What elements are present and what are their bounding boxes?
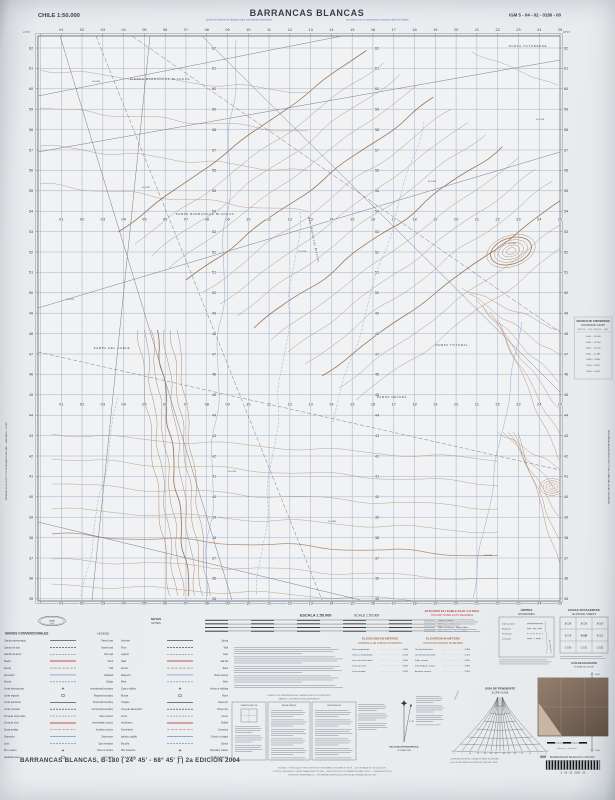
micro-text-line — [416, 712, 433, 713]
grid-row-label: 55 — [375, 188, 379, 193]
micro-text-line — [424, 629, 476, 630]
grid-row-label: 42 — [375, 453, 379, 458]
credit-line-1: EDITADO Y PUBLICADO POR EL INSTITUTO GEO… — [278, 767, 386, 770]
grid-row-label: 48 — [375, 331, 379, 336]
elevation-row-en: 4.365 — [465, 649, 471, 651]
micro-text-line — [560, 656, 602, 657]
spot-elevation-dot — [484, 555, 485, 556]
notes-title-es: NOTAS — [151, 617, 161, 621]
micro-text-line — [271, 739, 303, 740]
micro-text-line — [315, 720, 350, 721]
legend-item-es: Cementerio — [121, 729, 134, 732]
grid-row-label: 60 — [564, 86, 569, 91]
legend-item-en: Railroad — [104, 674, 113, 677]
grid-column-label: 01 — [59, 402, 63, 407]
grid-row-label: 59 — [212, 107, 216, 112]
grid-column-label: 08 — [205, 27, 209, 32]
grid-column-label: 09 — [225, 601, 229, 606]
grid-row-label: 39 — [29, 515, 33, 520]
box3-title: DATUM WGS-84 — [327, 704, 341, 707]
elevation-row-en: Intermediate contour — [415, 665, 435, 668]
micro-text-line — [315, 716, 339, 717]
micro-text-line — [315, 743, 349, 744]
legend-item-en: Trail — [109, 667, 114, 670]
conversion-row: 4.000 — 13.123 — [586, 348, 602, 350]
grid-row-label: 50 — [29, 290, 34, 295]
legend-item-es: Arenal — [121, 667, 128, 670]
grid-row-label: 43 — [564, 433, 568, 438]
micro-text-line — [424, 622, 478, 623]
legend-item-es: Línea de alta tensión — [121, 708, 143, 711]
micro-text-line — [235, 726, 260, 727]
legend-item-es: Hito fronterizo — [121, 749, 136, 752]
scale-bar-segment — [228, 627, 251, 628]
micro-text-line — [416, 721, 433, 722]
grid-column-label: 23 — [516, 601, 520, 606]
micro-text-line — [315, 750, 353, 751]
micro-text-line — [271, 720, 304, 721]
legend-item-en: Provincial boundary — [93, 701, 114, 704]
scale-bar-segment — [320, 627, 343, 628]
grid-column-label: 17 — [392, 601, 396, 606]
grid-column-label: 17 — [392, 27, 396, 32]
grid-column-label: 21 — [475, 601, 479, 606]
grid-row-label: 53 — [212, 229, 216, 234]
spot-elevation-value: 4.033 — [487, 555, 493, 557]
spot-elevation-value: 4.150 — [231, 471, 237, 473]
legend-item-es: Curva auxiliar — [4, 729, 18, 732]
micro-text-line — [416, 696, 441, 697]
micro-text-line — [358, 720, 377, 721]
grid-row-label: 35 — [29, 596, 33, 601]
legend-item-en: Well — [224, 647, 229, 649]
corner-coordinate-nw: 24°45' — [23, 30, 31, 34]
grid-row-label: 51 — [29, 270, 33, 275]
spot-elevation-value: 4.074 — [69, 299, 75, 301]
fan-tick: 7 — [462, 753, 463, 755]
elev-guide-title-es: GUÍA DE ELEVACIÓN — [571, 662, 597, 665]
grid-row-label: 51 — [375, 270, 379, 275]
slope-footnote-a: a) PENDIENTE ENTRE CURVAS DE NIVEL SUCES… — [450, 758, 499, 761]
grid-row-label: 53 — [29, 229, 33, 234]
micro-text-line — [234, 678, 339, 679]
legend-item-es: Iglesia o capilla — [121, 736, 137, 738]
grid-row-label: 62 — [564, 45, 568, 50]
grid-column-label: 15 — [350, 402, 354, 407]
slope-left-axis: TANGENTE — [453, 690, 460, 701]
legend-item-en: Communal boundary — [92, 708, 114, 711]
grid-row-label: 43 — [212, 433, 216, 438]
legend-item-en: Spot elevation — [98, 742, 113, 745]
micro-text-line — [358, 708, 385, 709]
grid-row-label: 42 — [29, 453, 33, 458]
micro-text-line — [271, 743, 303, 744]
limits-title-en: BOUNDARIES — [518, 613, 535, 616]
legend-item-en: Auxiliary contour — [96, 729, 113, 732]
grid-column-label: 21 — [475, 402, 479, 407]
legend-title-es: SIGNOS CONVENCIONALES — [5, 632, 48, 636]
micro-text-line — [416, 715, 443, 716]
fan-rung — [452, 751, 549, 752]
grid-column-label: 02 — [80, 217, 84, 222]
legend-item-en: Mine — [223, 682, 229, 684]
spot-elevation-value: 4.705 — [511, 243, 517, 245]
elevation-row-es: 3.925 — [403, 671, 409, 673]
micro-text-line — [416, 725, 441, 726]
header-note-right: este documento no compromete la posición… — [346, 19, 409, 22]
legend-item-es: Camino de tierra — [4, 653, 22, 656]
grid-column-label: 05 — [142, 27, 146, 32]
grid-row-label: 53 — [564, 229, 568, 234]
grid-column-label: 18 — [412, 402, 416, 407]
grid-column-label: 11 — [267, 601, 271, 606]
micro-text-line — [560, 658, 606, 659]
legend-item-en: Lake — [223, 654, 229, 656]
grid-column-label: 12 — [288, 402, 292, 407]
grid-row-label: 39 — [375, 515, 379, 520]
scale-bar-segment — [366, 620, 389, 621]
grid-column-label: 17 — [392, 402, 396, 407]
grid-column-label: 03 — [101, 27, 105, 32]
micro-text-line — [234, 685, 335, 686]
fan-curve — [502, 697, 515, 751]
micro-text-line — [416, 717, 441, 718]
grid-column-label: 23 — [516, 27, 520, 32]
legend-item-es: Cota — [4, 742, 10, 745]
grid-row-label: 35 — [212, 596, 216, 601]
micro-text-line — [271, 735, 293, 736]
grid-row-label: 46 — [212, 372, 216, 377]
legend-item-en: Boundary marker — [210, 749, 228, 752]
grid-column-label: 18 — [412, 217, 416, 222]
spot-elevation-value: 4.365 — [95, 81, 101, 83]
edition-line: BARRANCAS BLANCAS, B-180 ( 24° 45' - 68°… — [20, 756, 240, 764]
grid-row-label: 42 — [564, 453, 568, 458]
grid-row-label: 62 — [29, 45, 33, 50]
micro-text-line — [416, 710, 442, 711]
grid-row-label: 47 — [375, 351, 379, 356]
micro-text-line — [315, 741, 351, 742]
spot-elevation-value: 4.462 — [431, 181, 437, 183]
grid-row-label: 56 — [564, 168, 568, 173]
grid-column-label: 25 — [558, 402, 562, 407]
grid-column-label: 16 — [371, 402, 375, 407]
spot-elevation-dot — [428, 181, 429, 182]
elevation-row-en: 3.925 — [465, 671, 471, 673]
spot-elevation-dot — [328, 521, 329, 522]
grid-column-label: 15 — [350, 601, 354, 606]
grid-row-label: 51 — [212, 270, 216, 275]
legend-item-es: Laguna — [121, 654, 129, 656]
product-brand: IGM — [540, 755, 546, 759]
legend-item-en: Depression — [101, 735, 113, 738]
scale-bar-segment — [228, 631, 251, 632]
micro-text-line — [358, 716, 388, 717]
grid-column-label: 03 — [101, 402, 105, 407]
grid-row-label: 38 — [212, 535, 216, 540]
barcode — [546, 761, 600, 770]
red-notice-es: ESTE MAPA ES LEGIBLE BAJO LUZ ROJA — [425, 609, 480, 613]
elevation-row-en: 3.950 — [465, 666, 471, 668]
grid-column-label: 24 — [537, 27, 542, 32]
micro-text-line — [315, 754, 339, 755]
barcode-digits: 5 04 02 0180 00 — [561, 771, 586, 775]
declination-date: OCTUBRE 2003 — [397, 750, 411, 752]
legend-items: Camino pavimentadoPaved roadCamino de ri… — [4, 640, 229, 759]
grid-column-label: 22 — [495, 27, 499, 32]
micro-text-line — [271, 714, 303, 715]
grid-row-label: 42 — [212, 453, 216, 458]
legend-item-es: Camino de ripio — [4, 646, 21, 649]
grid-row-label: 57 — [375, 147, 379, 152]
grid-row-label: 39 — [212, 515, 216, 520]
legend-item-en: Sand — [223, 668, 229, 670]
grid-column-label: 20 — [454, 27, 459, 32]
grid-column-label: 21 — [475, 27, 479, 32]
grid-row-label: 37 — [212, 555, 216, 560]
grid-column-label: 08 — [205, 601, 209, 606]
elev-guide-title-en: ELEVATION GUIDE — [574, 666, 594, 669]
elevation-row-es: Curva de nivel índice — [352, 659, 373, 662]
fan-tick: 20 — [484, 753, 486, 755]
grid-row-label: 43 — [375, 433, 379, 438]
grid-column-label: 06 — [163, 217, 167, 222]
micro-text-line — [234, 663, 302, 664]
elev-guide-tick-label: 2.000 — [595, 750, 600, 752]
grid-column-label: 08 — [205, 217, 209, 222]
grid-row-label: 55 — [564, 188, 568, 193]
grid-column-label: 19 — [433, 217, 437, 222]
elevation-row-en: Unchecked elevation — [415, 654, 436, 657]
sheet-title: BARRANCAS BLANCAS — [250, 8, 365, 18]
grid-column-label: 07 — [184, 217, 188, 222]
limits-title-es: LÍMITES — [521, 607, 533, 612]
elevation-row-es: Cota no comprobada — [352, 654, 373, 657]
legend-item-en: Cemetery — [218, 729, 229, 732]
grid-row-label: 36 — [564, 576, 568, 581]
micro-text-line — [271, 760, 304, 761]
elevation-row-en: Index contour — [415, 659, 429, 662]
grid-row-label: 58 — [564, 127, 568, 132]
grid-row-label: 40 — [564, 494, 569, 499]
fan-tick: 45 — [495, 753, 497, 755]
micro-text-line — [315, 722, 353, 723]
grid-column-label: 23 — [516, 402, 520, 407]
spot-elevation-dot — [66, 299, 67, 300]
grid-row-label: 62 — [212, 45, 216, 50]
micro-text-line — [315, 726, 339, 727]
micro-text-line — [235, 751, 252, 752]
legend-item-es: Puente — [4, 681, 12, 684]
legend-item-en: Salt flat — [220, 660, 228, 663]
micro-text-line — [358, 718, 386, 719]
fan-tick: 30 — [490, 753, 492, 755]
grid-row-label: 45 — [564, 392, 568, 397]
grid-column-label: 09 — [225, 27, 229, 32]
micro-text-line — [235, 747, 260, 748]
fan-tick: 7 — [538, 753, 539, 755]
grid-column-label: 15 — [350, 217, 354, 222]
logo-abbr: I.G.M. — [49, 621, 55, 623]
micro-text-line — [315, 735, 339, 736]
elevation-rows: Cota comprobada4.365Cota no comprobada4.… — [352, 648, 471, 673]
micro-text-line — [416, 702, 433, 703]
grid-column-label: 12 — [288, 27, 292, 32]
grid-row-label: 36 — [375, 576, 379, 581]
grid-column-label: 13 — [308, 27, 312, 32]
inset-caption: Kilómetros — Kilometers — [557, 747, 577, 750]
grid-row-label: 48 — [564, 331, 568, 336]
grid-column-label: 02 — [80, 402, 84, 407]
grid-column-label: 18 — [412, 601, 416, 606]
grid-row-label: 52 — [212, 249, 216, 254]
micro-text-line — [315, 724, 351, 725]
conversion-row: 5.000 — 16.404 — [586, 336, 602, 338]
elevation-row-en: Auxiliary contour — [415, 670, 431, 673]
fan-tick: 10 — [529, 753, 531, 755]
elevation-row-es: 4.000 — [403, 660, 409, 662]
micro-text-line — [315, 760, 350, 761]
adjoining-cell: B-158 — [565, 623, 572, 626]
grid-row-label: 59 — [375, 107, 379, 112]
grid-column-label: 16 — [371, 601, 375, 606]
legend-item-es: Quebrada seca — [4, 756, 20, 759]
legend-title-en: LEGEND — [97, 632, 110, 636]
place-label: PAMPA BARRANCAS BLANCAS — [176, 212, 235, 216]
elevation-row-es: 4.120 — [403, 655, 409, 657]
grid-row-label: 50 — [564, 290, 569, 295]
grid-column-label: 19 — [433, 27, 437, 32]
scale-title-es: ESCALA 1:50.000 — [300, 614, 332, 618]
grid-row-label: 48 — [29, 331, 33, 336]
grid-row-label: 55 — [212, 188, 216, 193]
micro-text-line — [235, 732, 252, 733]
legend-item-en: River or stream — [97, 749, 113, 752]
legend-item-en: Bridge — [106, 681, 113, 684]
grid-column-label: 03 — [101, 601, 105, 606]
legend-item-en: Paved road — [101, 640, 113, 643]
micro-text-line — [315, 739, 348, 740]
grid-row-label: 52 — [29, 249, 33, 254]
grid-column-label: 16 — [371, 217, 375, 222]
fan-tick: 15 — [521, 753, 523, 755]
grid-row-label: 49 — [564, 311, 568, 316]
legend-item-es: Cerco — [121, 715, 128, 718]
grid-row-label: 36 — [212, 576, 216, 581]
grid-column-label: 13 — [308, 601, 312, 606]
grid-row-label: 49 — [29, 311, 33, 316]
micro-text-line — [315, 745, 339, 746]
elev-guide-tick-label: 6.000 — [595, 674, 600, 676]
legend-item-es: Ferrocarril — [4, 674, 15, 677]
grid-ref-line-2: SAMPLE 1.000 METER GRID REFERENCE — [278, 698, 320, 701]
scale-bar-segment — [228, 624, 251, 625]
spot-elevation-value: 4.318 — [539, 119, 545, 121]
micro-text-line — [235, 728, 262, 729]
legend-item-en: Ruins — [222, 695, 229, 697]
box2-title: DATUM PSAD-56 — [282, 704, 296, 707]
adjoining-title-es: HOJAS ADYACENTES — [568, 608, 599, 612]
legend-item-es: Casa o edificio — [121, 688, 137, 690]
sheet-code: IGM 5 - 04 - 02 - 0180 - 00 — [509, 13, 562, 18]
micro-text-line — [315, 748, 350, 749]
legend-item-en: School — [221, 743, 229, 745]
adjoining-cell: B-160 — [597, 623, 604, 626]
grid-column-label: 05 — [142, 217, 146, 222]
micro-text-line — [358, 729, 377, 730]
legend-item-en: Track — [107, 660, 114, 663]
micro-text-line — [271, 724, 305, 725]
grid-row-label: 41 — [564, 474, 568, 479]
micro-text-line — [416, 698, 443, 699]
legend-item-en: House or building — [210, 687, 229, 690]
adjoining-cell: C-191 — [581, 647, 588, 650]
grid-column-label: 08 — [205, 402, 209, 407]
grid-row-label: 47 — [564, 351, 568, 356]
grid-column-label: 05 — [142, 601, 146, 606]
micro-text-line — [234, 687, 343, 688]
grid-column-label: 15 — [350, 27, 354, 32]
grid-row-label: 36 — [29, 576, 33, 581]
grid-row-label: 54 — [564, 209, 569, 214]
fan-tick: 5 — [454, 753, 455, 755]
micro-text-line — [271, 733, 306, 734]
micro-text-line — [271, 748, 304, 749]
micro-text-line — [234, 668, 334, 669]
grid-column-label: 07 — [184, 27, 188, 32]
micro-text-line — [234, 676, 331, 677]
micro-text-line — [315, 733, 352, 734]
boundary-item: Regional — [502, 629, 511, 631]
micro-text-line — [234, 661, 337, 662]
micro-text-line — [315, 758, 351, 759]
logo-country: CHILE — [50, 623, 55, 625]
grid-row-label: 46 — [564, 372, 568, 377]
micro-text-line — [315, 752, 351, 753]
grid-row-label: 61 — [212, 66, 216, 71]
conversion-row: 3.000 — 9.843 — [586, 359, 600, 361]
grid-row-label: 38 — [29, 535, 33, 540]
legend-item-es: Curva de nivel — [4, 722, 19, 725]
legend-item-es: Roquerío — [121, 674, 131, 677]
grid-column-label: 07 — [184, 601, 188, 606]
fan-tick: 20 — [514, 753, 516, 755]
spot-elevation-dot — [508, 243, 509, 244]
micro-text-line — [271, 729, 306, 730]
legend-item-es: Curva de nivel índice — [4, 715, 26, 718]
elevation-title-es: ELEVACIÓN EN METROS — [362, 636, 398, 641]
grid-row-label: 45 — [29, 392, 33, 397]
legend-item-en: Fence — [222, 716, 229, 718]
legend-item-es: Camino pavimentado — [4, 640, 26, 643]
micro-text-line — [234, 672, 302, 673]
elevation-subtitle-en: CONTOUR INTERVAL 50 METERS — [423, 642, 463, 645]
micro-text-line — [358, 725, 385, 726]
spot-elevation-dot — [142, 187, 143, 188]
micro-text-line — [271, 731, 304, 732]
grid-column-label: 04 — [121, 27, 126, 32]
grid-column-label: 06 — [163, 27, 167, 32]
magnetic-declination-diagram: 4° 30' DECLINACIÓN MAGNÉTICA OCTUBRE 200… — [389, 700, 418, 752]
micro-text-line — [315, 729, 351, 730]
grid-row-label: 53 — [375, 229, 379, 234]
micro-text-line — [315, 714, 349, 715]
grid-column-label: 10 — [246, 27, 251, 32]
legend-item-en: Index contour — [99, 715, 113, 718]
micro-text-line — [424, 624, 475, 625]
grid-row-label: 37 — [29, 555, 33, 560]
legend-item-es: Río o estero — [4, 749, 17, 752]
